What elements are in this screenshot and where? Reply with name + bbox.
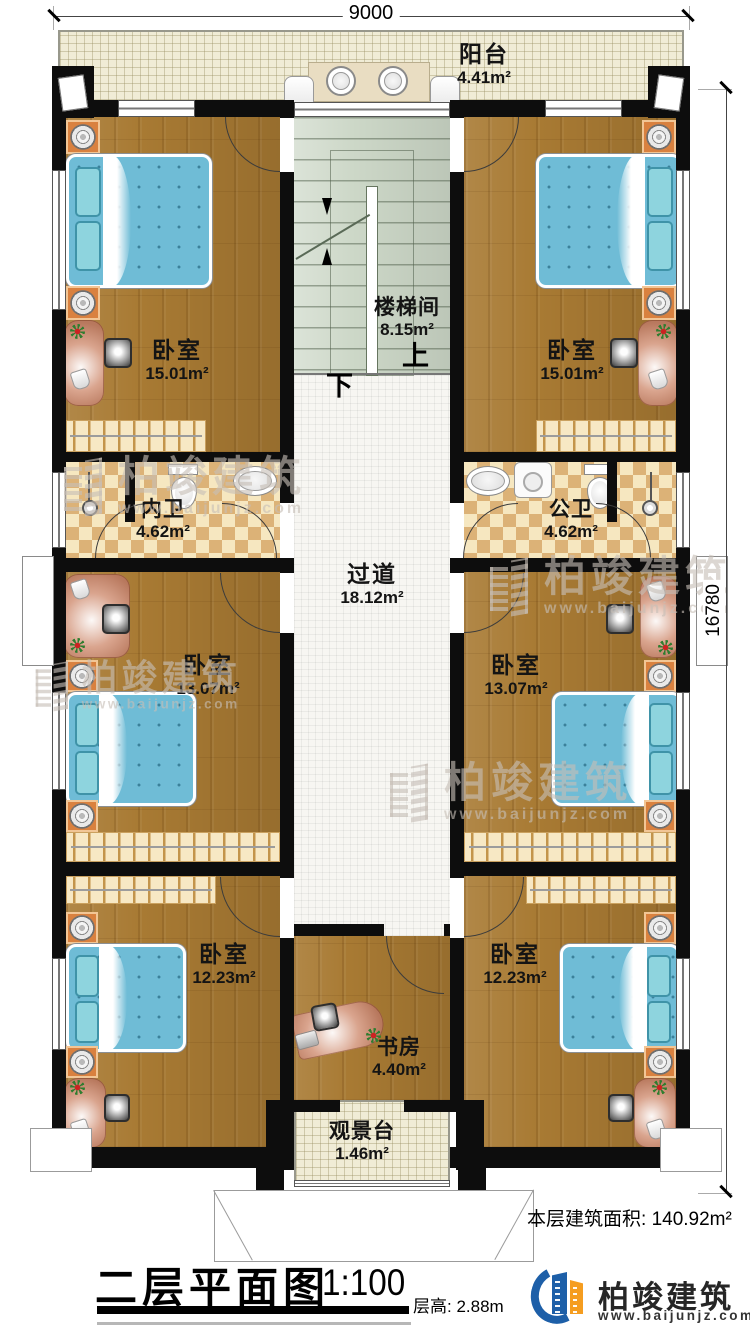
porch-roof — [214, 1190, 534, 1262]
wardrobe — [66, 420, 206, 452]
wall — [450, 452, 690, 462]
blanket-fold — [99, 693, 127, 805]
floor-area-note: 本层建筑面积: 140.92m² — [527, 1204, 732, 1231]
computer-monitor — [104, 1094, 130, 1122]
roof-eave — [660, 1128, 722, 1172]
pillow — [75, 167, 101, 217]
room-label-bedroom-bottom-left: 卧室 12.23m² — [192, 942, 255, 987]
pillow — [647, 167, 673, 217]
stair-up-label: 上 — [402, 334, 429, 373]
wall — [450, 172, 464, 503]
room-label-bedroom-top-right: 卧室 15.01m² — [540, 338, 603, 383]
wardrobe — [66, 832, 280, 862]
company-logo-tower-orange — [570, 1280, 583, 1314]
wardrobe — [536, 420, 676, 452]
nightstand-lamp — [66, 120, 100, 154]
wall — [404, 1100, 450, 1112]
wall — [450, 100, 545, 117]
double-bed — [552, 692, 682, 806]
window — [52, 472, 66, 548]
dimension-height-label: 16780 — [703, 580, 725, 641]
wash-basin — [326, 66, 356, 96]
wardrobe — [526, 876, 676, 904]
wall — [450, 862, 690, 876]
sliding-window — [294, 102, 450, 117]
wall — [280, 558, 294, 573]
window — [545, 100, 622, 117]
room-label-hallway: 过道 18.12m² — [340, 562, 403, 607]
wall — [450, 100, 464, 118]
toilet — [168, 464, 198, 475]
wall — [450, 1147, 690, 1168]
wall — [294, 1100, 340, 1112]
nightstand-lamp — [644, 660, 676, 692]
computer-monitor — [102, 604, 130, 634]
window — [676, 170, 690, 310]
room-label-bedroom-top-left: 卧室 15.01m² — [145, 338, 208, 383]
blanket-fold — [619, 945, 647, 1051]
wall — [52, 862, 294, 876]
room-label-bedroom-mid-left: 卧室 13.07m² — [176, 653, 239, 698]
hallway-floor — [294, 375, 450, 936]
shower-head-icon — [82, 500, 98, 516]
double-bed — [66, 944, 186, 1052]
wall — [456, 1100, 484, 1170]
pillow — [75, 703, 99, 747]
blanket-fold — [621, 693, 649, 805]
computer-monitor — [606, 604, 634, 634]
floor-height-note: 层高: 2.88m — [413, 1292, 504, 1317]
plant — [70, 1080, 85, 1095]
computer-monitor — [104, 338, 132, 368]
window — [52, 692, 66, 790]
plant — [656, 324, 671, 339]
bay-window — [22, 556, 54, 666]
computer-monitor — [610, 338, 638, 368]
nightstand-lamp — [642, 120, 676, 154]
corner-window — [654, 74, 684, 111]
room-label-balcony: 阳台 4.41m² — [457, 42, 511, 87]
stair-arrow-up-icon — [322, 248, 332, 265]
nightstand-lamp — [66, 1046, 98, 1078]
double-bed — [66, 692, 196, 806]
room-label-study: 书房 4.40m² — [372, 1036, 426, 1079]
corner-window — [58, 74, 88, 111]
pillow — [649, 703, 673, 747]
wall — [294, 924, 384, 936]
sink — [233, 466, 277, 496]
floor-plan-page: 阳台 4.41m² 楼梯间 8.15m² 上 下 卧室 15.01m² 卧室 1… — [0, 0, 750, 1336]
double-bed — [66, 154, 212, 288]
wall — [266, 1100, 294, 1170]
sink — [466, 466, 510, 496]
double-bed — [536, 154, 682, 288]
nightstand-lamp — [644, 1046, 676, 1078]
wall — [280, 100, 294, 118]
pillow — [647, 955, 671, 997]
window — [118, 100, 195, 117]
wall — [444, 924, 450, 936]
nightstand-lamp — [644, 800, 676, 832]
shower-cord — [650, 472, 652, 502]
stair-down-label: 下 — [326, 364, 353, 403]
plant — [70, 324, 85, 339]
company-website: www.baijunjz.com — [598, 1308, 750, 1323]
nightstand-lamp — [66, 286, 100, 320]
window — [52, 170, 66, 310]
pillow — [75, 221, 101, 271]
stair-arrow-down-icon — [322, 198, 332, 215]
window — [676, 472, 690, 548]
plant — [70, 638, 85, 653]
room-label-deck: 观景台 1.46m² — [329, 1120, 395, 1163]
window — [52, 958, 66, 1050]
shower-head-icon — [642, 500, 658, 516]
plant — [652, 1080, 667, 1095]
wall — [450, 558, 690, 572]
pillow — [649, 751, 673, 795]
washing-machine — [514, 462, 552, 498]
dimension-width-label: 9000 — [343, 2, 400, 25]
nightstand-lamp — [66, 912, 98, 944]
wardrobe — [464, 832, 676, 862]
wall — [450, 633, 464, 878]
room-label-bath-left: 内卫 4.62m² — [136, 498, 190, 541]
window — [676, 692, 690, 790]
wall — [280, 172, 294, 503]
pillow — [75, 1001, 99, 1043]
wall — [280, 633, 294, 878]
nightstand-lamp — [644, 912, 676, 944]
wall — [52, 452, 294, 462]
floor-area-value: 140.92m² — [652, 1209, 732, 1230]
wash-basin — [378, 66, 408, 96]
pillow — [647, 1001, 671, 1043]
window — [676, 958, 690, 1050]
wardrobe — [66, 876, 216, 904]
blanket-fold — [103, 155, 131, 287]
double-bed — [560, 944, 680, 1052]
dimension-line-right — [726, 90, 727, 1194]
nightstand-lamp — [66, 800, 98, 832]
blanket-fold — [99, 945, 127, 1051]
plan-scale: 1:100 — [322, 1262, 405, 1304]
nightstand-lamp — [66, 660, 98, 692]
wall — [450, 558, 464, 573]
blanket-fold — [617, 155, 645, 287]
nightstand-lamp — [642, 286, 676, 320]
wall — [450, 938, 464, 1112]
computer-monitor — [608, 1094, 634, 1122]
room-label-bedroom-mid-right: 卧室 13.07m² — [484, 653, 547, 698]
pillow — [647, 221, 673, 271]
pillow — [75, 955, 99, 997]
wall — [52, 558, 294, 572]
stair-edge-line — [294, 373, 450, 375]
roof-eave — [30, 1128, 92, 1172]
deck-railing — [294, 1180, 450, 1187]
title-underline — [97, 1306, 409, 1314]
computer-monitor — [310, 1002, 340, 1032]
plant — [658, 640, 673, 655]
wall — [280, 938, 294, 1112]
floor-area-label: 本层建筑面积: — [527, 1209, 646, 1230]
shower-cord — [88, 472, 90, 502]
company-logo-tower-blue — [552, 1272, 567, 1314]
room-label-stairwell: 楼梯间 8.15m² — [374, 296, 440, 339]
room-label-bath-right: 公卫 4.62m² — [544, 498, 598, 541]
title-subline — [97, 1322, 411, 1325]
pillow — [75, 751, 99, 795]
room-label-bedroom-bottom-right: 卧室 12.23m² — [483, 942, 546, 987]
